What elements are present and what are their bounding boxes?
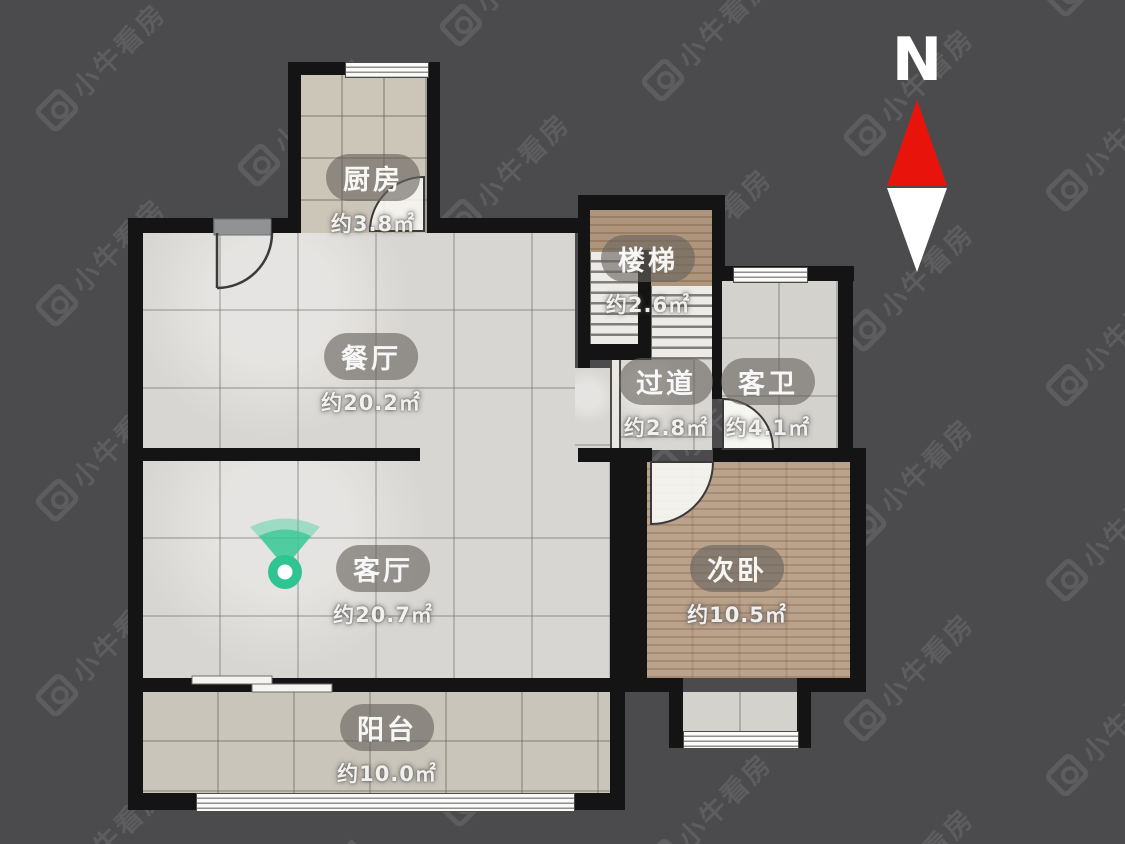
room-label-hallway: 过道 约2.8㎡ bbox=[619, 358, 713, 442]
north-letter: N bbox=[892, 30, 942, 90]
room-area-stairs: 约2.6㎡ bbox=[606, 289, 690, 319]
room-name-bedroom: 次卧 bbox=[690, 545, 784, 592]
room-area-kitchen: 约3.8㎡ bbox=[331, 208, 415, 238]
room-label-bedroom: 次卧 约10.5㎡ bbox=[687, 545, 787, 629]
north-arrow-red-icon bbox=[887, 100, 947, 186]
room-area-bathroom: 约4.1㎡ bbox=[726, 412, 810, 442]
room-area-living: 约20.7㎡ bbox=[333, 599, 433, 629]
room-name-dining: 餐厅 bbox=[324, 333, 418, 380]
north-arrow-white-icon bbox=[887, 188, 947, 272]
room-label-stairs: 楼梯 约2.6㎡ bbox=[601, 235, 695, 319]
room-label-bathroom: 客卫 约4.1㎡ bbox=[721, 358, 815, 442]
room-name-bathroom: 客卫 bbox=[721, 358, 815, 405]
room-label-living: 客厅 约20.7㎡ bbox=[333, 545, 433, 629]
room-name-hallway: 过道 bbox=[619, 358, 713, 405]
room-area-balcony: 约10.0㎡ bbox=[337, 758, 437, 788]
room-area-hallway: 约2.8㎡ bbox=[624, 412, 708, 442]
room-label-balcony: 阳台 约10.0㎡ bbox=[337, 704, 437, 788]
room-label-kitchen: 厨房 约3.8㎡ bbox=[326, 154, 420, 238]
room-name-living: 客厅 bbox=[336, 545, 430, 592]
room-name-stairs: 楼梯 bbox=[601, 235, 695, 282]
floorplan-screenshot: 小牛看房小牛看房小牛看房小牛看房小牛看房小牛看房小牛看房小牛看房小牛看房小牛看房… bbox=[0, 0, 1125, 844]
room-area-bedroom: 约10.5㎡ bbox=[687, 599, 787, 629]
room-name-balcony: 阳台 bbox=[340, 704, 434, 751]
room-name-kitchen: 厨房 bbox=[326, 154, 420, 201]
room-area-dining: 约20.2㎡ bbox=[321, 387, 421, 417]
north-compass: N bbox=[885, 30, 949, 272]
room-label-dining: 餐厅 约20.2㎡ bbox=[321, 333, 421, 417]
